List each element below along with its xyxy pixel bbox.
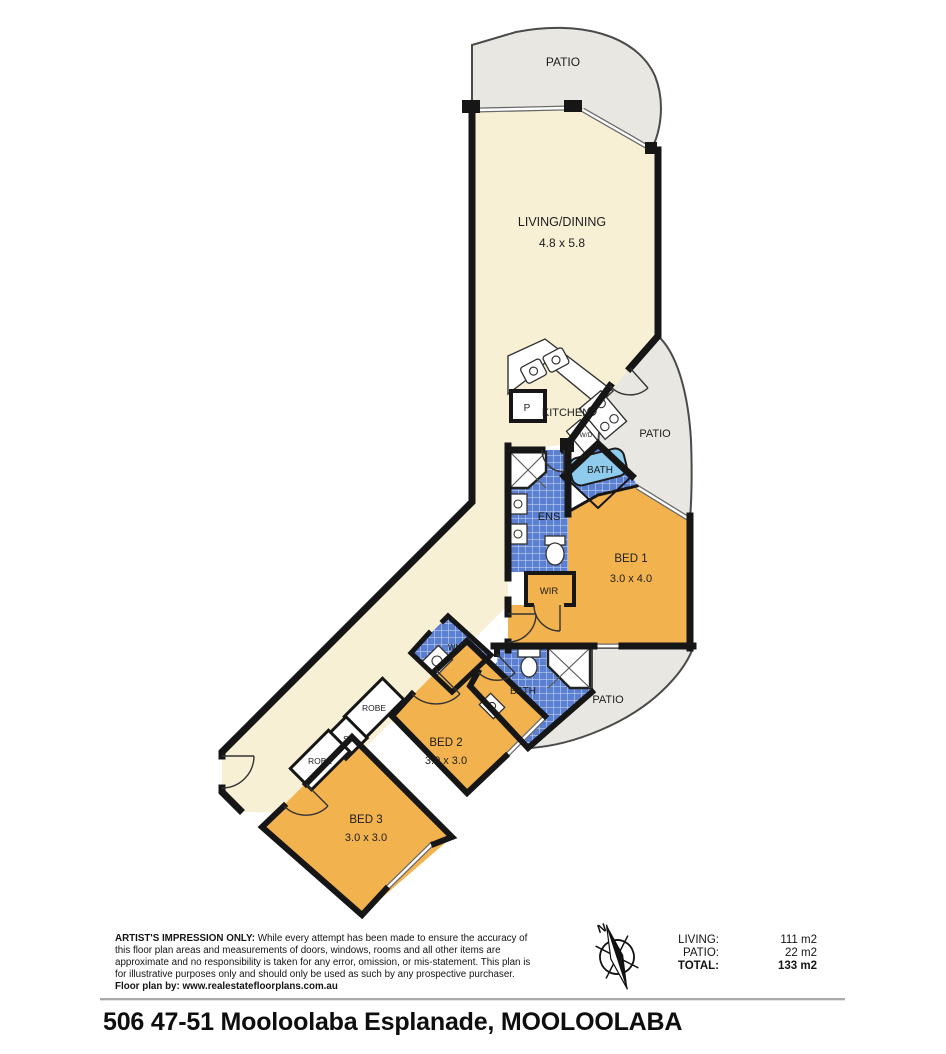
disclaimer-heading: ARTIST'S IMPRESSION ONLY: (115, 933, 255, 944)
living-dims: 4.8 x 5.8 (539, 236, 585, 250)
legend-living-value: 111 m2 (737, 934, 817, 947)
kitchen-label: KITCHEN (542, 407, 590, 419)
legend-total-label: TOTAL: (655, 960, 719, 973)
ens-label: ENS (538, 511, 561, 523)
legend-patio-value: 22 m2 (737, 947, 817, 960)
bed1-dims: 3.0 x 4.0 (610, 573, 652, 585)
legend-living-label: LIVING: (655, 934, 719, 947)
patio-top-label: PATIO (546, 55, 580, 69)
legend-row-living: LIVING: 111 m2 (655, 934, 817, 947)
living-label: LIVING/DINING (518, 215, 606, 229)
area-legend: LIVING: 111 m2 PATIO: 22 m2 TOTAL: 133 m… (655, 934, 817, 973)
fridge-label: F (568, 445, 574, 456)
patio-right-label: PATIO (639, 428, 671, 440)
footer-divider (100, 998, 845, 1001)
floor-plan-page: PATIO LIVING/DINING 4.8 x 5.8 KITCHEN P … (0, 0, 946, 1054)
store-label: S (343, 734, 349, 744)
ens-toilet-icon (545, 536, 565, 565)
legend-patio-label: PATIO: (655, 947, 719, 960)
bed2-dims: 3.0 x 3.0 (425, 755, 467, 767)
robe2-label: ROBE (308, 756, 332, 766)
property-address: 506 47-51 Mooloolaba Esplanade, MOOLOOLA… (103, 1008, 682, 1037)
ens-shower-icon (510, 452, 546, 488)
compass-north-label: N (595, 920, 608, 936)
legend-total-value: 133 m2 (737, 960, 817, 973)
bed1-label: BED 1 (614, 553, 647, 565)
disclaimer-credit: Floor plan by: www.realestatefloorplans.… (115, 981, 338, 992)
patio-middle-label: PATIO (592, 694, 624, 706)
bath2-shower-icon (548, 648, 590, 688)
compass-rose-icon: N (590, 919, 643, 994)
bath1-label: BATH (587, 465, 613, 476)
pantry-label: P (524, 403, 531, 414)
disclaimer-text: ARTIST'S IMPRESSION ONLY: While every at… (115, 933, 539, 993)
floor-plan-drawing: PATIO LIVING/DINING 4.8 x 5.8 KITCHEN P … (0, 0, 946, 1054)
wd-label: W/D (580, 432, 593, 439)
wm-label: WM (448, 643, 463, 652)
robe1-label: ROBE (362, 703, 386, 713)
bed2-label: BED 2 (429, 737, 462, 749)
legend-row-total: TOTAL: 133 m2 (655, 960, 817, 973)
legend-row-patio: PATIO: 22 m2 (655, 947, 817, 960)
bed3-dims: 3.0 x 3.0 (345, 832, 387, 844)
bed3-label: BED 3 (349, 814, 382, 826)
bath2-label: BATH (510, 686, 536, 697)
wir-label: WIR (540, 586, 559, 597)
